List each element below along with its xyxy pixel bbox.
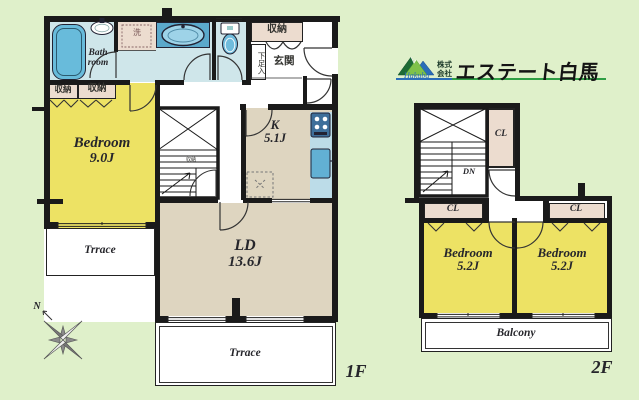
wall: [405, 198, 485, 203]
wall-stub: [578, 183, 585, 198]
logo-company-prefix: 株式会社: [437, 60, 452, 78]
logo-company-name: エステート白馬: [454, 56, 601, 85]
wall: [595, 313, 612, 318]
washer-label: 洗: [128, 29, 146, 37]
wall: [419, 313, 437, 318]
storage-label: 収納: [251, 25, 303, 36]
understair-storage-label: 収納: [182, 158, 200, 163]
closet-2f-left-label: CL: [438, 205, 468, 215]
bedroom-2f-left-label: Bedroom5.2J: [424, 246, 512, 273]
floor2-label: 2F: [582, 358, 622, 377]
wall: [543, 218, 607, 223]
wall: [243, 198, 272, 203]
terrace-bottom-label: Trrace: [200, 347, 290, 359]
closet-2f-right-label: CL: [560, 205, 592, 215]
wall: [155, 316, 168, 322]
balcony-label: Balcony: [470, 327, 562, 339]
bathroom-label: Bath room: [78, 49, 118, 69]
closet-label: 収納: [78, 84, 116, 94]
wall: [515, 196, 612, 201]
wall: [240, 104, 246, 110]
wall: [44, 16, 50, 229]
kitchen-counter: [310, 112, 332, 198]
wall: [268, 104, 336, 110]
wall: [304, 316, 336, 322]
bedroom-2f-right-label: Bedroom5.2J: [517, 246, 607, 273]
logo-script-text: Hakuba: [404, 71, 429, 80]
stairs-down-label: DN: [455, 167, 483, 176]
wall: [607, 196, 612, 318]
terrace-left-label: Trrace: [58, 244, 142, 256]
wall: [303, 76, 307, 104]
wall: [146, 222, 160, 228]
wall: [414, 103, 419, 203]
closet-label: 収納: [48, 85, 78, 94]
floorplan-page: Bath room 収納 収納 収納 下足入 玄関 洗 収納 Bedroom9.…: [0, 0, 639, 400]
wall: [155, 198, 218, 203]
wall: [242, 80, 251, 85]
closet-2f-top-label: CL: [487, 130, 515, 140]
wall: [212, 22, 216, 80]
wall: [500, 313, 532, 318]
wall-stub: [37, 199, 63, 204]
wall: [114, 22, 118, 52]
bedroom-1f-label: Bedroom9.0J: [56, 136, 148, 166]
living-dining-label: LD13.6J: [200, 238, 290, 271]
wall: [44, 222, 58, 228]
wall: [310, 198, 336, 203]
wall: [515, 103, 520, 201]
floor1-label: 1F: [336, 362, 376, 381]
wall: [241, 108, 246, 200]
wall-stub: [32, 107, 49, 111]
wall: [44, 16, 340, 22]
wall: [332, 16, 338, 48]
wall: [424, 218, 489, 223]
vanity-counter: [156, 22, 210, 48]
kitchen-label: K5.1J: [248, 118, 302, 145]
compass-north-label: N: [30, 302, 44, 313]
entrance-label: 玄関: [264, 56, 304, 67]
wall-stub: [162, 8, 172, 18]
wall-stub: [232, 298, 240, 318]
wall: [414, 103, 520, 108]
